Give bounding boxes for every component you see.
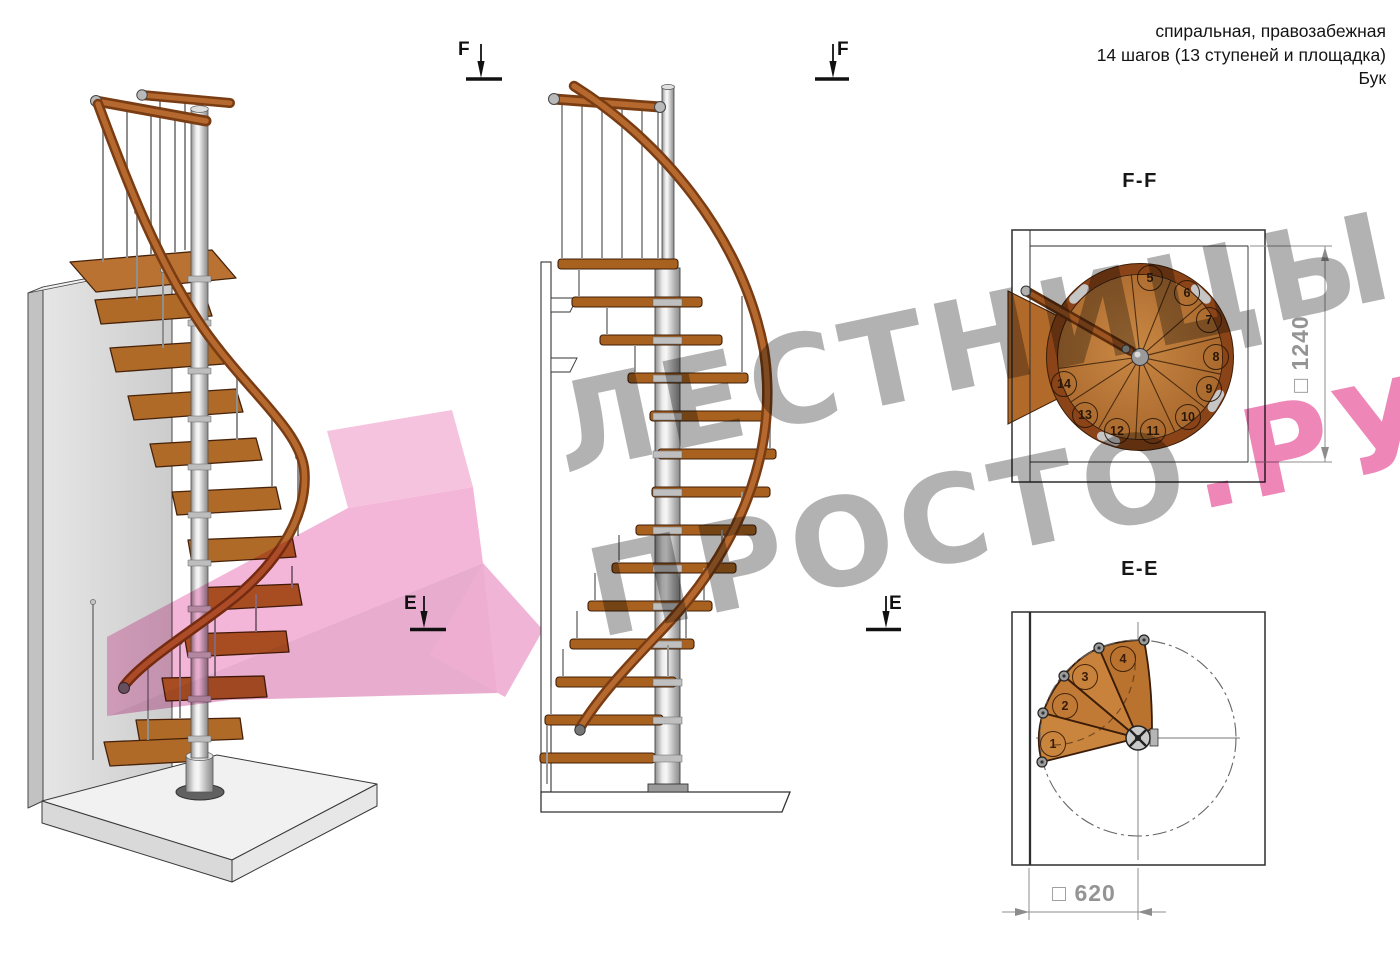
- elevation-view: [540, 84, 790, 812]
- ee-step-3: 3: [1072, 664, 1098, 690]
- ff-step-7: 7: [1196, 307, 1222, 333]
- spec-material: Бук: [950, 67, 1386, 91]
- section-letter-e-left: E: [404, 593, 417, 615]
- section-letter-f-left: F: [458, 39, 470, 61]
- ff-step-10: 10: [1175, 404, 1201, 430]
- ff-step-6: 6: [1174, 280, 1200, 306]
- ff-step-5: 5: [1137, 265, 1163, 291]
- ff-step-8: 8: [1203, 344, 1229, 370]
- ff-dimension-label: □ 1240: [1287, 269, 1313, 439]
- ff-step-12: 12: [1104, 418, 1130, 444]
- elevation-floor: [541, 792, 790, 812]
- ff-center-pole: [1132, 349, 1149, 366]
- ee-step-1: 1: [1040, 731, 1066, 757]
- drawing-canvas: спиральная, правозабежная 14 шагов (13 с…: [0, 0, 1400, 961]
- ee-view-title: E-E: [1098, 558, 1182, 581]
- iso-view: [28, 90, 377, 882]
- ff-step-11: 11: [1140, 418, 1166, 444]
- ff-view-title: F-F: [1098, 170, 1182, 193]
- staircase-technical-drawing: [0, 0, 1400, 961]
- ee-step-2: 2: [1052, 693, 1078, 719]
- ff-step-9: 9: [1196, 376, 1222, 402]
- section-letter-f-right: F: [837, 39, 849, 61]
- spec-steps: 14 шагов (13 ступеней и площадка): [950, 44, 1386, 68]
- section-marker-f-left: [466, 44, 502, 79]
- ee-dimension-label: □ 620: [1028, 880, 1140, 907]
- section-letter-e-right: E: [889, 593, 902, 615]
- ff-step-14: 14: [1051, 371, 1077, 397]
- spec-type: спиральная, правозабежная: [950, 20, 1386, 44]
- ee-step-4: 4: [1110, 646, 1136, 672]
- ff-plan-view: [1008, 230, 1332, 482]
- ff-step-13: 13: [1072, 402, 1098, 428]
- elevation-wall: [541, 262, 577, 792]
- drawing-spec-header: спиральная, правозабежная 14 шагов (13 с…: [950, 20, 1386, 91]
